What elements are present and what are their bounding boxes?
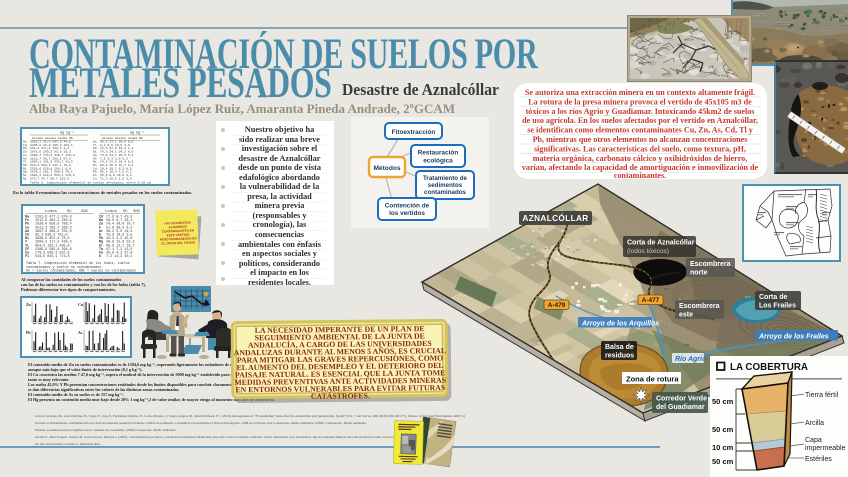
svg-text:Tierra fértil: Tierra fértil xyxy=(805,392,839,399)
svg-text:impermeable: impermeable xyxy=(805,445,846,452)
svg-text:Estériles: Estériles xyxy=(805,456,832,463)
svg-text:Arcilla: Arcilla xyxy=(805,420,824,427)
svg-text:Capa: Capa xyxy=(805,437,822,444)
svg-text:50 cm: 50 cm xyxy=(712,425,734,434)
svg-text:10 cm: 10 cm xyxy=(712,443,734,452)
svg-text:50 cm: 50 cm xyxy=(712,397,734,406)
svg-text:50 cm: 50 cm xyxy=(712,457,734,466)
svg-text:LA COBERTURA: LA COBERTURA xyxy=(730,362,808,373)
